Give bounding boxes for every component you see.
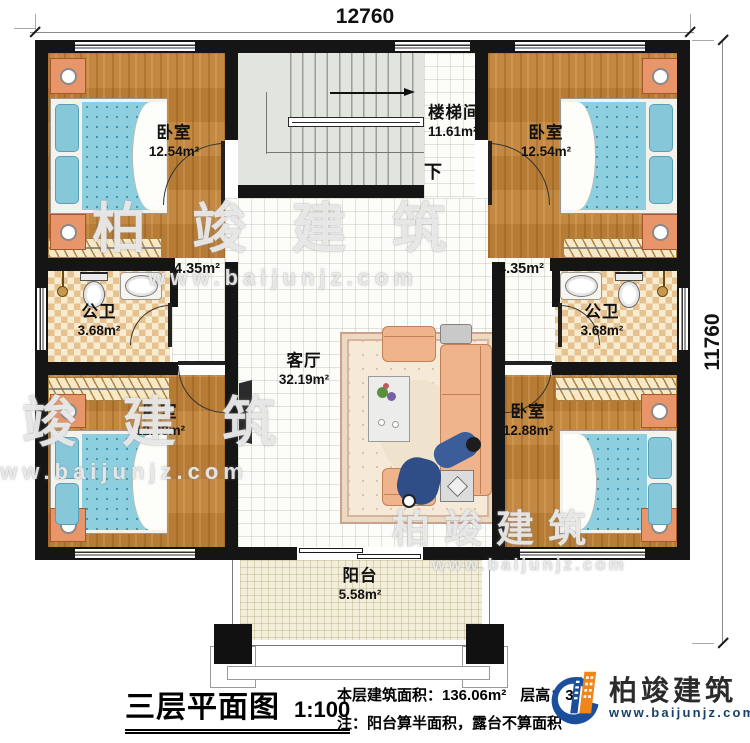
- lamp-icon: [652, 68, 669, 85]
- room-area: 3.68m²: [581, 323, 624, 339]
- door-leaf: [488, 141, 492, 205]
- lamp-icon: [60, 68, 77, 85]
- shower-icon: [57, 286, 68, 297]
- window: [75, 40, 195, 53]
- sliding-door-panel: [357, 554, 421, 559]
- plan-title: 三层平面图: [125, 682, 280, 726]
- lamp-icon: [652, 224, 669, 241]
- bed-bl-sheet: [132, 434, 166, 530]
- glass-side-table: [440, 470, 474, 502]
- area-label-hall-right: 4.35m²: [498, 261, 544, 278]
- door-leaf: [558, 303, 562, 347]
- room-label-bedroom-tl: 卧室 12.54m²: [149, 124, 199, 160]
- brand-logo-icon: [545, 668, 603, 728]
- bed-tr-pillow: [649, 104, 673, 152]
- bed-tr-pillow: [649, 156, 673, 204]
- window: [515, 40, 645, 53]
- nightstand: [50, 58, 86, 94]
- window: [395, 40, 470, 53]
- floor-plan-page: 卧室 12.54m² 卧室 12.54m² 楼梯间 11.61m² 下 4.35…: [0, 0, 750, 743]
- flower-decor: [383, 383, 389, 389]
- stair-guide-v: [266, 92, 267, 154]
- room-area: 32.19m²: [279, 372, 329, 388]
- lamp-icon: [651, 403, 668, 420]
- plan-area-line: 本层建筑面积：136.06m²层高：3: [337, 684, 574, 705]
- armchair-top: [382, 326, 436, 362]
- room-name: 楼梯间: [428, 104, 481, 124]
- terrace-outline: [227, 666, 490, 680]
- shower-hose: [663, 271, 665, 287]
- stair-direction-arrow: [404, 88, 415, 96]
- stair-direction-line: [330, 92, 406, 94]
- bed-tl-pillow: [55, 104, 79, 152]
- door-leaf: [505, 361, 552, 365]
- coffee-table: [368, 376, 410, 442]
- dimension-top-label: 12760: [300, 5, 430, 29]
- wall-bathleft-bottom: [35, 362, 178, 375]
- room-name: 阳台: [339, 567, 382, 587]
- window: [35, 288, 48, 350]
- stair-guide-h: [266, 152, 424, 153]
- sofa-cushion-line: [442, 394, 480, 395]
- person-head: [402, 494, 416, 508]
- plan-note: 注：阳台算半面积，露台不算面积: [337, 712, 574, 733]
- room-label-bedroom-tr: 卧室 12.54m²: [521, 124, 571, 160]
- room-area: 12.54m²: [521, 144, 571, 160]
- wall-bedroomtr-bottom: [550, 258, 690, 271]
- room-label-bedroom-bl: 卧室 12.88m²: [135, 403, 185, 439]
- dimension-top-line: [30, 32, 694, 33]
- wall-bathright-partition: [552, 271, 560, 307]
- room-name: 卧室: [135, 403, 185, 423]
- nightstand: [641, 394, 677, 428]
- nightstand: [50, 214, 86, 250]
- glass-table-top: [446, 475, 467, 496]
- room-label-balcony: 阳台 5.58m²: [339, 567, 382, 603]
- window: [75, 547, 195, 560]
- toilet-icon: [615, 272, 643, 281]
- nightstand: [50, 394, 86, 428]
- stair-railing: [288, 117, 424, 127]
- window: [520, 547, 645, 560]
- door-leaf: [178, 361, 225, 365]
- room-label-living: 客厅 32.19m²: [279, 352, 329, 388]
- tv-icon: [239, 380, 252, 444]
- plan-scale: 1:100: [294, 697, 350, 723]
- bed-bl-pillow: [55, 437, 79, 479]
- room-name: 客厅: [279, 352, 329, 372]
- room-area: 12.54m²: [149, 144, 199, 160]
- nightstand: [642, 58, 678, 94]
- cup-decor: [378, 419, 385, 426]
- dimension-extension: [692, 643, 714, 644]
- balcony-column: [466, 624, 504, 664]
- wall-left-mid: [225, 262, 238, 547]
- room-name: 卧室: [521, 124, 571, 144]
- armchair-back-line: [384, 336, 434, 337]
- wall-bathright-bottom: [552, 362, 690, 375]
- room-area: 12.88m²: [503, 423, 553, 439]
- side-table: [440, 324, 472, 344]
- cup-decor: [392, 421, 399, 428]
- building-area: 本层建筑面积：136.06m²: [337, 687, 506, 704]
- door-leaf: [168, 303, 172, 347]
- area-label-hall-left: 4.35m²: [174, 261, 220, 278]
- balcony-column: [214, 624, 252, 664]
- room-area: 11.61m²: [428, 124, 481, 140]
- room-name: 公卫: [78, 303, 121, 323]
- sofa-back-line: [480, 346, 481, 494]
- wall-bedroomtl-stairs: [225, 40, 238, 140]
- room-area: 4.35m²: [174, 261, 220, 278]
- stair-down-label: 下: [424, 162, 442, 184]
- room-name: 卧室: [503, 403, 553, 423]
- bed-tl-pillow: [55, 156, 79, 204]
- shower-icon: [657, 286, 668, 297]
- room-label-bath-right: 公卫 3.68m²: [581, 303, 624, 339]
- toilet-icon: [80, 272, 108, 281]
- bed-br-pillow: [648, 437, 672, 479]
- room-name: 卧室: [149, 124, 199, 144]
- lamp-icon: [60, 224, 77, 241]
- brand-url: www.baijunjz.com: [609, 705, 750, 720]
- room-name: 公卫: [581, 303, 624, 323]
- room-area: 12.88m²: [135, 423, 185, 439]
- window: [677, 288, 690, 350]
- room-label-bath-left: 公卫 3.68m²: [78, 303, 121, 339]
- room-label-stairwell: 楼梯间 11.61m²: [428, 104, 481, 140]
- nightstand: [642, 214, 678, 250]
- bed-bl-pillow: [55, 483, 79, 525]
- wall-bedroomtl-bottom: [35, 258, 175, 271]
- shower-hose: [62, 271, 64, 287]
- person-head: [466, 437, 481, 452]
- sink-icon: [565, 275, 598, 297]
- plan-title-block: 三层平面图 1:100: [125, 682, 350, 734]
- dimension-extension: [14, 28, 36, 29]
- dimension-right-label: 11760: [701, 297, 725, 387]
- room-area: 4.35m²: [498, 261, 544, 278]
- door-leaf: [221, 141, 225, 205]
- brand-name: 柏竣建筑: [609, 676, 750, 705]
- room-label-bedroom-br: 卧室 12.88m²: [503, 403, 553, 439]
- bed-br-pillow: [648, 483, 672, 525]
- room-area: 3.68m²: [78, 323, 121, 339]
- sliding-door-panel: [299, 548, 363, 553]
- flower-decor: [387, 392, 396, 401]
- room-area: 5.58m²: [339, 587, 382, 603]
- wall-stairs-bottom: [238, 185, 424, 198]
- brand-logo: 柏竣建筑 www.baijunjz.com: [545, 668, 750, 728]
- dimension-extension: [692, 40, 714, 41]
- plan-info-block: 本层建筑面积：136.06m²层高：3 注：阳台算半面积，露台不算面积: [337, 684, 574, 733]
- sink-icon: [125, 275, 158, 297]
- brand-text: 柏竣建筑 www.baijunjz.com: [609, 676, 750, 720]
- lamp-icon: [60, 403, 77, 420]
